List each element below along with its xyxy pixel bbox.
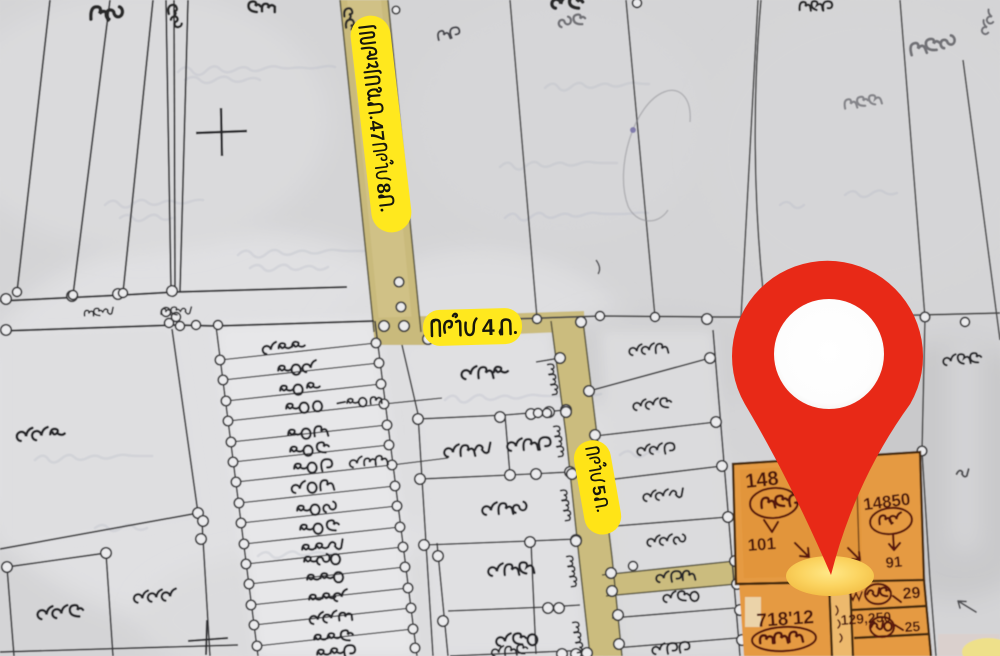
svg-text:47: 47 bbox=[364, 119, 387, 142]
svg-text:25: 25 bbox=[904, 618, 921, 635]
svg-text:101: 101 bbox=[747, 534, 777, 555]
svg-text:4: 4 bbox=[481, 314, 495, 340]
svg-text:148: 148 bbox=[744, 468, 779, 493]
svg-text:29: 29 bbox=[902, 585, 921, 603]
svg-text:718'12: 718'12 bbox=[756, 607, 815, 632]
svg-text:91: 91 bbox=[885, 554, 903, 572]
